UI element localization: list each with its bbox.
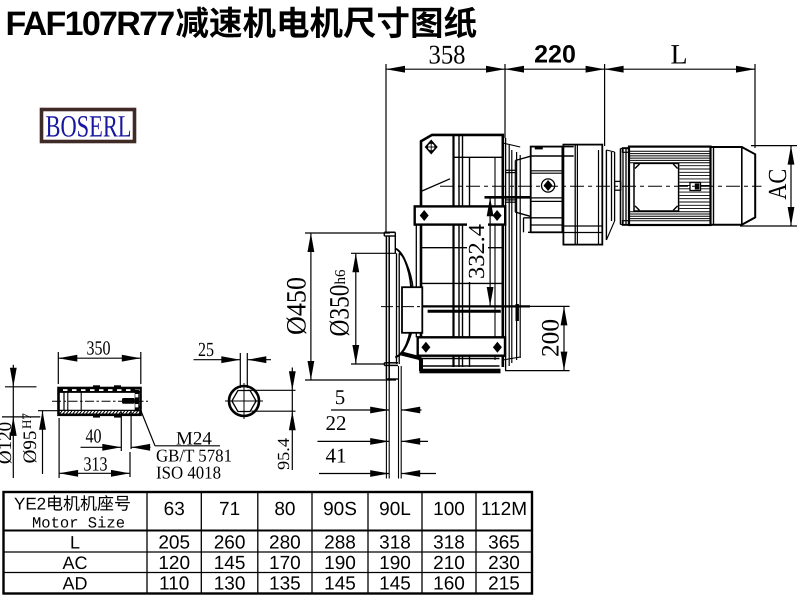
svg-text:Ø120: Ø120	[0, 422, 16, 464]
svg-text:288: 288	[324, 533, 356, 554]
svg-text:112M: 112M	[481, 499, 527, 520]
svg-text:200: 200	[538, 319, 565, 357]
svg-text:95.4: 95.4	[274, 437, 293, 470]
svg-text:AC: AC	[763, 169, 792, 200]
svg-text:5: 5	[335, 385, 346, 409]
svg-text:80: 80	[274, 499, 295, 520]
svg-text:190: 190	[324, 553, 356, 574]
svg-text:ISO 4018: ISO 4018	[156, 463, 221, 483]
svg-text:318: 318	[379, 533, 411, 554]
svg-text:h6: h6	[333, 269, 349, 285]
svg-text:160: 160	[433, 574, 465, 595]
svg-text:215: 215	[488, 574, 520, 595]
svg-text:Ø95: Ø95	[20, 431, 41, 464]
svg-text:205: 205	[158, 533, 190, 554]
svg-text:210: 210	[433, 553, 465, 574]
svg-text:230: 230	[488, 553, 520, 574]
svg-text:358: 358	[429, 39, 466, 69]
svg-text:YE2: YE2	[14, 495, 46, 514]
svg-text:L: L	[70, 533, 80, 553]
svg-text:41: 41	[326, 444, 347, 468]
svg-text:22: 22	[326, 411, 347, 435]
svg-text:280: 280	[269, 533, 301, 554]
svg-text:220: 220	[534, 41, 576, 69]
svg-text:FAF107R77: FAF107R77	[6, 5, 175, 43]
svg-text:350: 350	[87, 338, 111, 360]
svg-text:Ø350: Ø350	[325, 285, 356, 337]
svg-text:145: 145	[214, 553, 246, 574]
svg-text:170: 170	[269, 553, 301, 574]
svg-text:AD: AD	[62, 574, 87, 594]
svg-text:40: 40	[86, 426, 102, 448]
svg-text:25: 25	[198, 339, 214, 361]
svg-text:100: 100	[433, 499, 465, 520]
svg-text:AC: AC	[62, 553, 87, 573]
svg-text:313: 313	[84, 454, 108, 476]
svg-text:130: 130	[214, 574, 246, 595]
svg-text:120: 120	[158, 553, 190, 574]
svg-text:90S: 90S	[323, 499, 357, 520]
svg-text:145: 145	[379, 574, 411, 595]
svg-text:Motor Size: Motor Size	[32, 515, 125, 533]
svg-text:332.4: 332.4	[464, 223, 489, 279]
svg-text:63: 63	[164, 499, 185, 520]
svg-text:H7: H7	[19, 413, 34, 429]
svg-text:318: 318	[433, 533, 465, 554]
svg-text:110: 110	[159, 574, 189, 595]
svg-text:135: 135	[269, 574, 301, 595]
svg-text:L: L	[670, 39, 687, 70]
svg-text:90L: 90L	[379, 499, 411, 520]
svg-text:145: 145	[324, 574, 356, 595]
svg-text:BOSERL: BOSERL	[46, 109, 132, 144]
svg-text:Ø450: Ø450	[282, 277, 313, 335]
svg-text:190: 190	[379, 553, 411, 574]
svg-text:260: 260	[214, 533, 246, 554]
svg-text:71: 71	[219, 499, 240, 520]
svg-text:365: 365	[488, 533, 520, 554]
